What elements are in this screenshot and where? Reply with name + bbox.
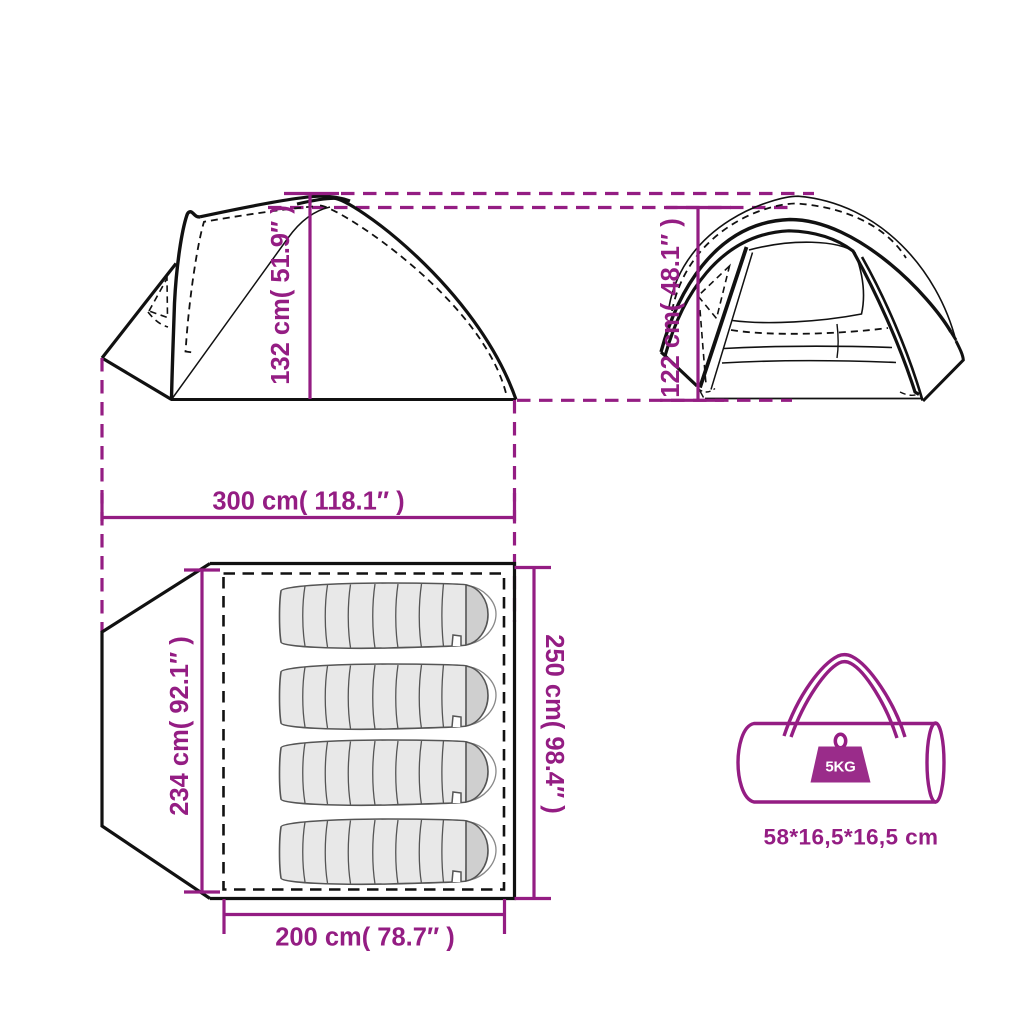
- svg-text:132 cm( 51.9″ ): 132 cm( 51.9″ ): [267, 205, 295, 384]
- svg-text:300 cm( 118.1″ ): 300 cm( 118.1″ ): [212, 488, 404, 516]
- svg-text:5KG: 5KG: [825, 759, 855, 776]
- svg-text:58*16,5*16,5 cm: 58*16,5*16,5 cm: [764, 825, 939, 850]
- svg-text:234 cm( 92.1″ ): 234 cm( 92.1″ ): [166, 636, 194, 815]
- svg-text:122 cm( 48.1″ ): 122 cm( 48.1″ ): [657, 218, 685, 397]
- svg-text:250 cm( 98.4″ ): 250 cm( 98.4″ ): [540, 634, 568, 813]
- svg-text:200 cm( 78.7″ ): 200 cm( 78.7″ ): [275, 924, 454, 952]
